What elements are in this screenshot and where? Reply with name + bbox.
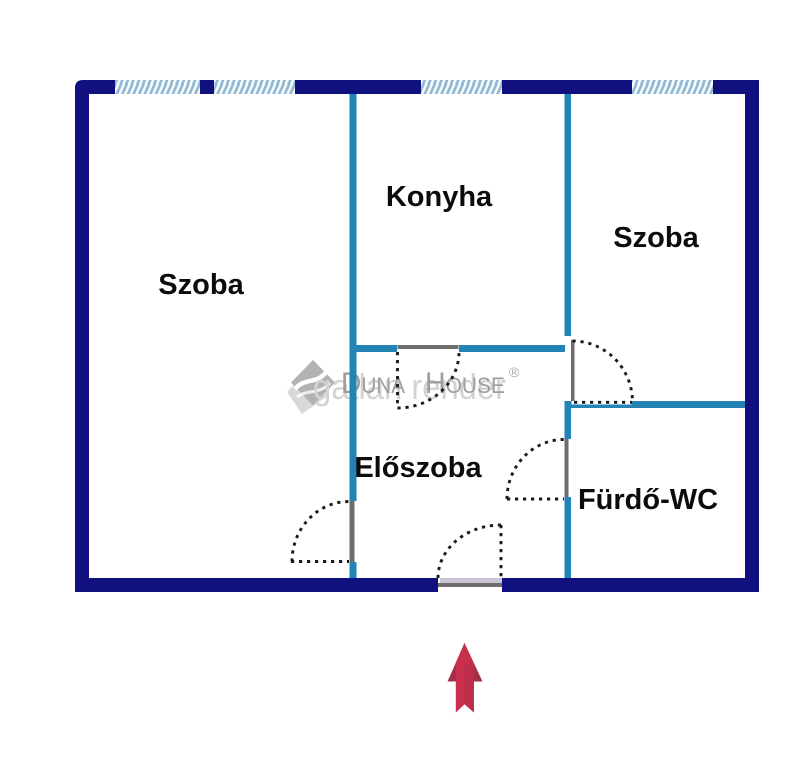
svg-text:Konyha: Konyha xyxy=(386,181,493,213)
svg-text:Előszoba: Előszoba xyxy=(354,452,482,484)
svg-text:Fürdő-WC: Fürdő-WC xyxy=(578,484,718,516)
svg-text:®: ® xyxy=(509,364,520,380)
svg-text:Szoba: Szoba xyxy=(613,222,699,254)
svg-text:Szoba: Szoba xyxy=(158,269,244,301)
